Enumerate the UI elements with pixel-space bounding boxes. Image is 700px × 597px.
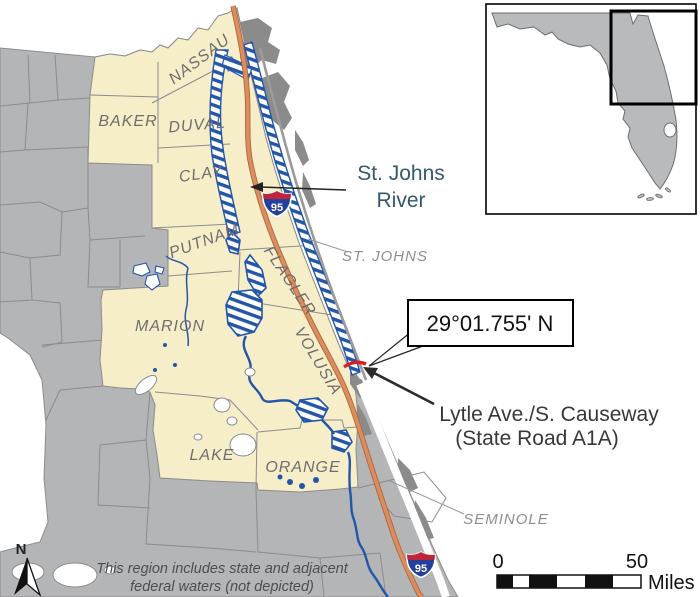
scale-segment	[497, 575, 513, 588]
north-label: N	[16, 541, 27, 558]
county-label-baker: BAKER	[98, 113, 157, 130]
county-label-orange: ORANGE	[265, 459, 340, 476]
inset-locator-map	[486, 4, 696, 214]
river-label-line1: St. Johns	[357, 162, 445, 185]
county-label-st-johns: ST. JOHNS	[342, 248, 428, 265]
shield-number: 95	[415, 563, 427, 575]
note-line2: federal waters (not depicted)	[130, 579, 314, 595]
map-figure: 95 95 NASSAU DUVAL BAKER CLAY PUTNAM FLA…	[0, 0, 700, 597]
causeway-label-line1: Lytle Ave./S. Causeway	[439, 403, 659, 426]
note-line1: This region includes state and adjacent	[96, 561, 348, 577]
scale-start: 0	[492, 551, 503, 573]
latitude-value: 29°01.755' N	[427, 311, 554, 336]
scale-end: 50	[626, 551, 648, 573]
map-canvas: 95 95 NASSAU DUVAL BAKER CLAY PUTNAM FLA…	[0, 0, 700, 597]
scale-bar-frame	[497, 575, 641, 588]
county-label-seminole: SEMINOLE	[463, 511, 549, 528]
county-label-lake: LAKE	[190, 447, 235, 464]
scale-segment	[529, 575, 557, 588]
scale-segment	[585, 575, 613, 588]
river-label-line2: River	[376, 189, 425, 212]
scale-unit: Miles	[648, 572, 695, 594]
inset-lake-okeechobee	[664, 123, 676, 137]
county-label-marion: MARION	[135, 318, 205, 335]
shield-number: 95	[271, 202, 283, 214]
causeway-label-line2: (State Road A1A)	[455, 427, 618, 450]
